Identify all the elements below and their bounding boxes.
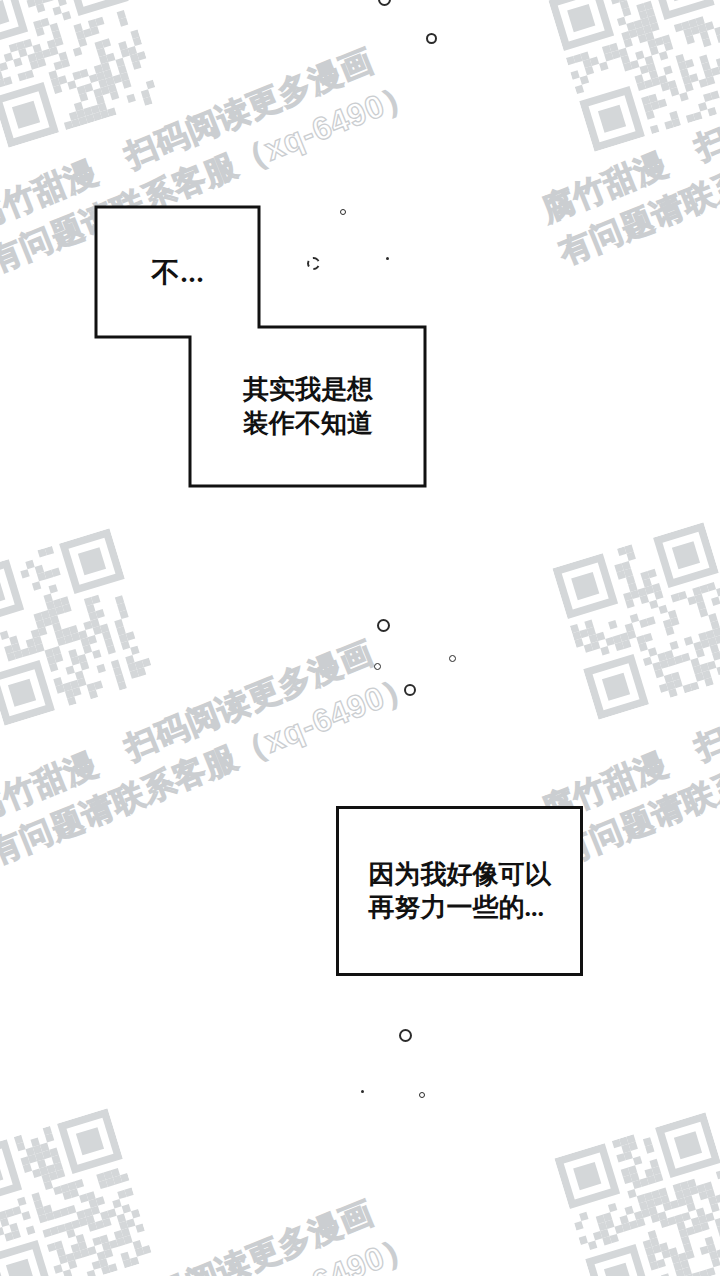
speech-line: 装作不知道 [243,407,373,441]
qr-code-icon [548,0,720,152]
ink-dot [361,1090,364,1093]
bubble-circle [419,1092,425,1098]
qr-code-icon [0,0,160,148]
bubble-circle [399,1029,412,1042]
speech-line: 其实我是想 [243,373,373,407]
comic-page: 腐竹甜漫 扫码阅读更多漫画 有问题请联系客服（xq-6490） 腐竹甜漫 扫码阅… [0,0,720,1276]
ink-dot [386,257,389,260]
bubble-circle [340,209,346,215]
bubble-circle [378,0,391,6]
qr-code-icon [552,522,720,719]
qr-code-icon [0,1108,154,1276]
speech-line: 再努力一些的... [369,891,551,924]
bubble-circle [404,684,416,696]
bubble-circle [307,257,320,270]
speech-text-actually: 其实我是想 装作不知道 [190,327,426,487]
bubble-circle [426,33,437,44]
qr-code-icon [0,528,156,725]
speech-text-no: 不... [96,207,260,338]
bubble-circle [374,663,381,670]
bubble-circle [449,655,456,662]
speech-bubble-bottom: 因为我好像可以 再努力一些的... [336,806,583,976]
qr-code-icon [554,1112,720,1276]
speech-line: 因为我好像可以 [369,858,551,891]
bubble-circle [377,619,390,632]
